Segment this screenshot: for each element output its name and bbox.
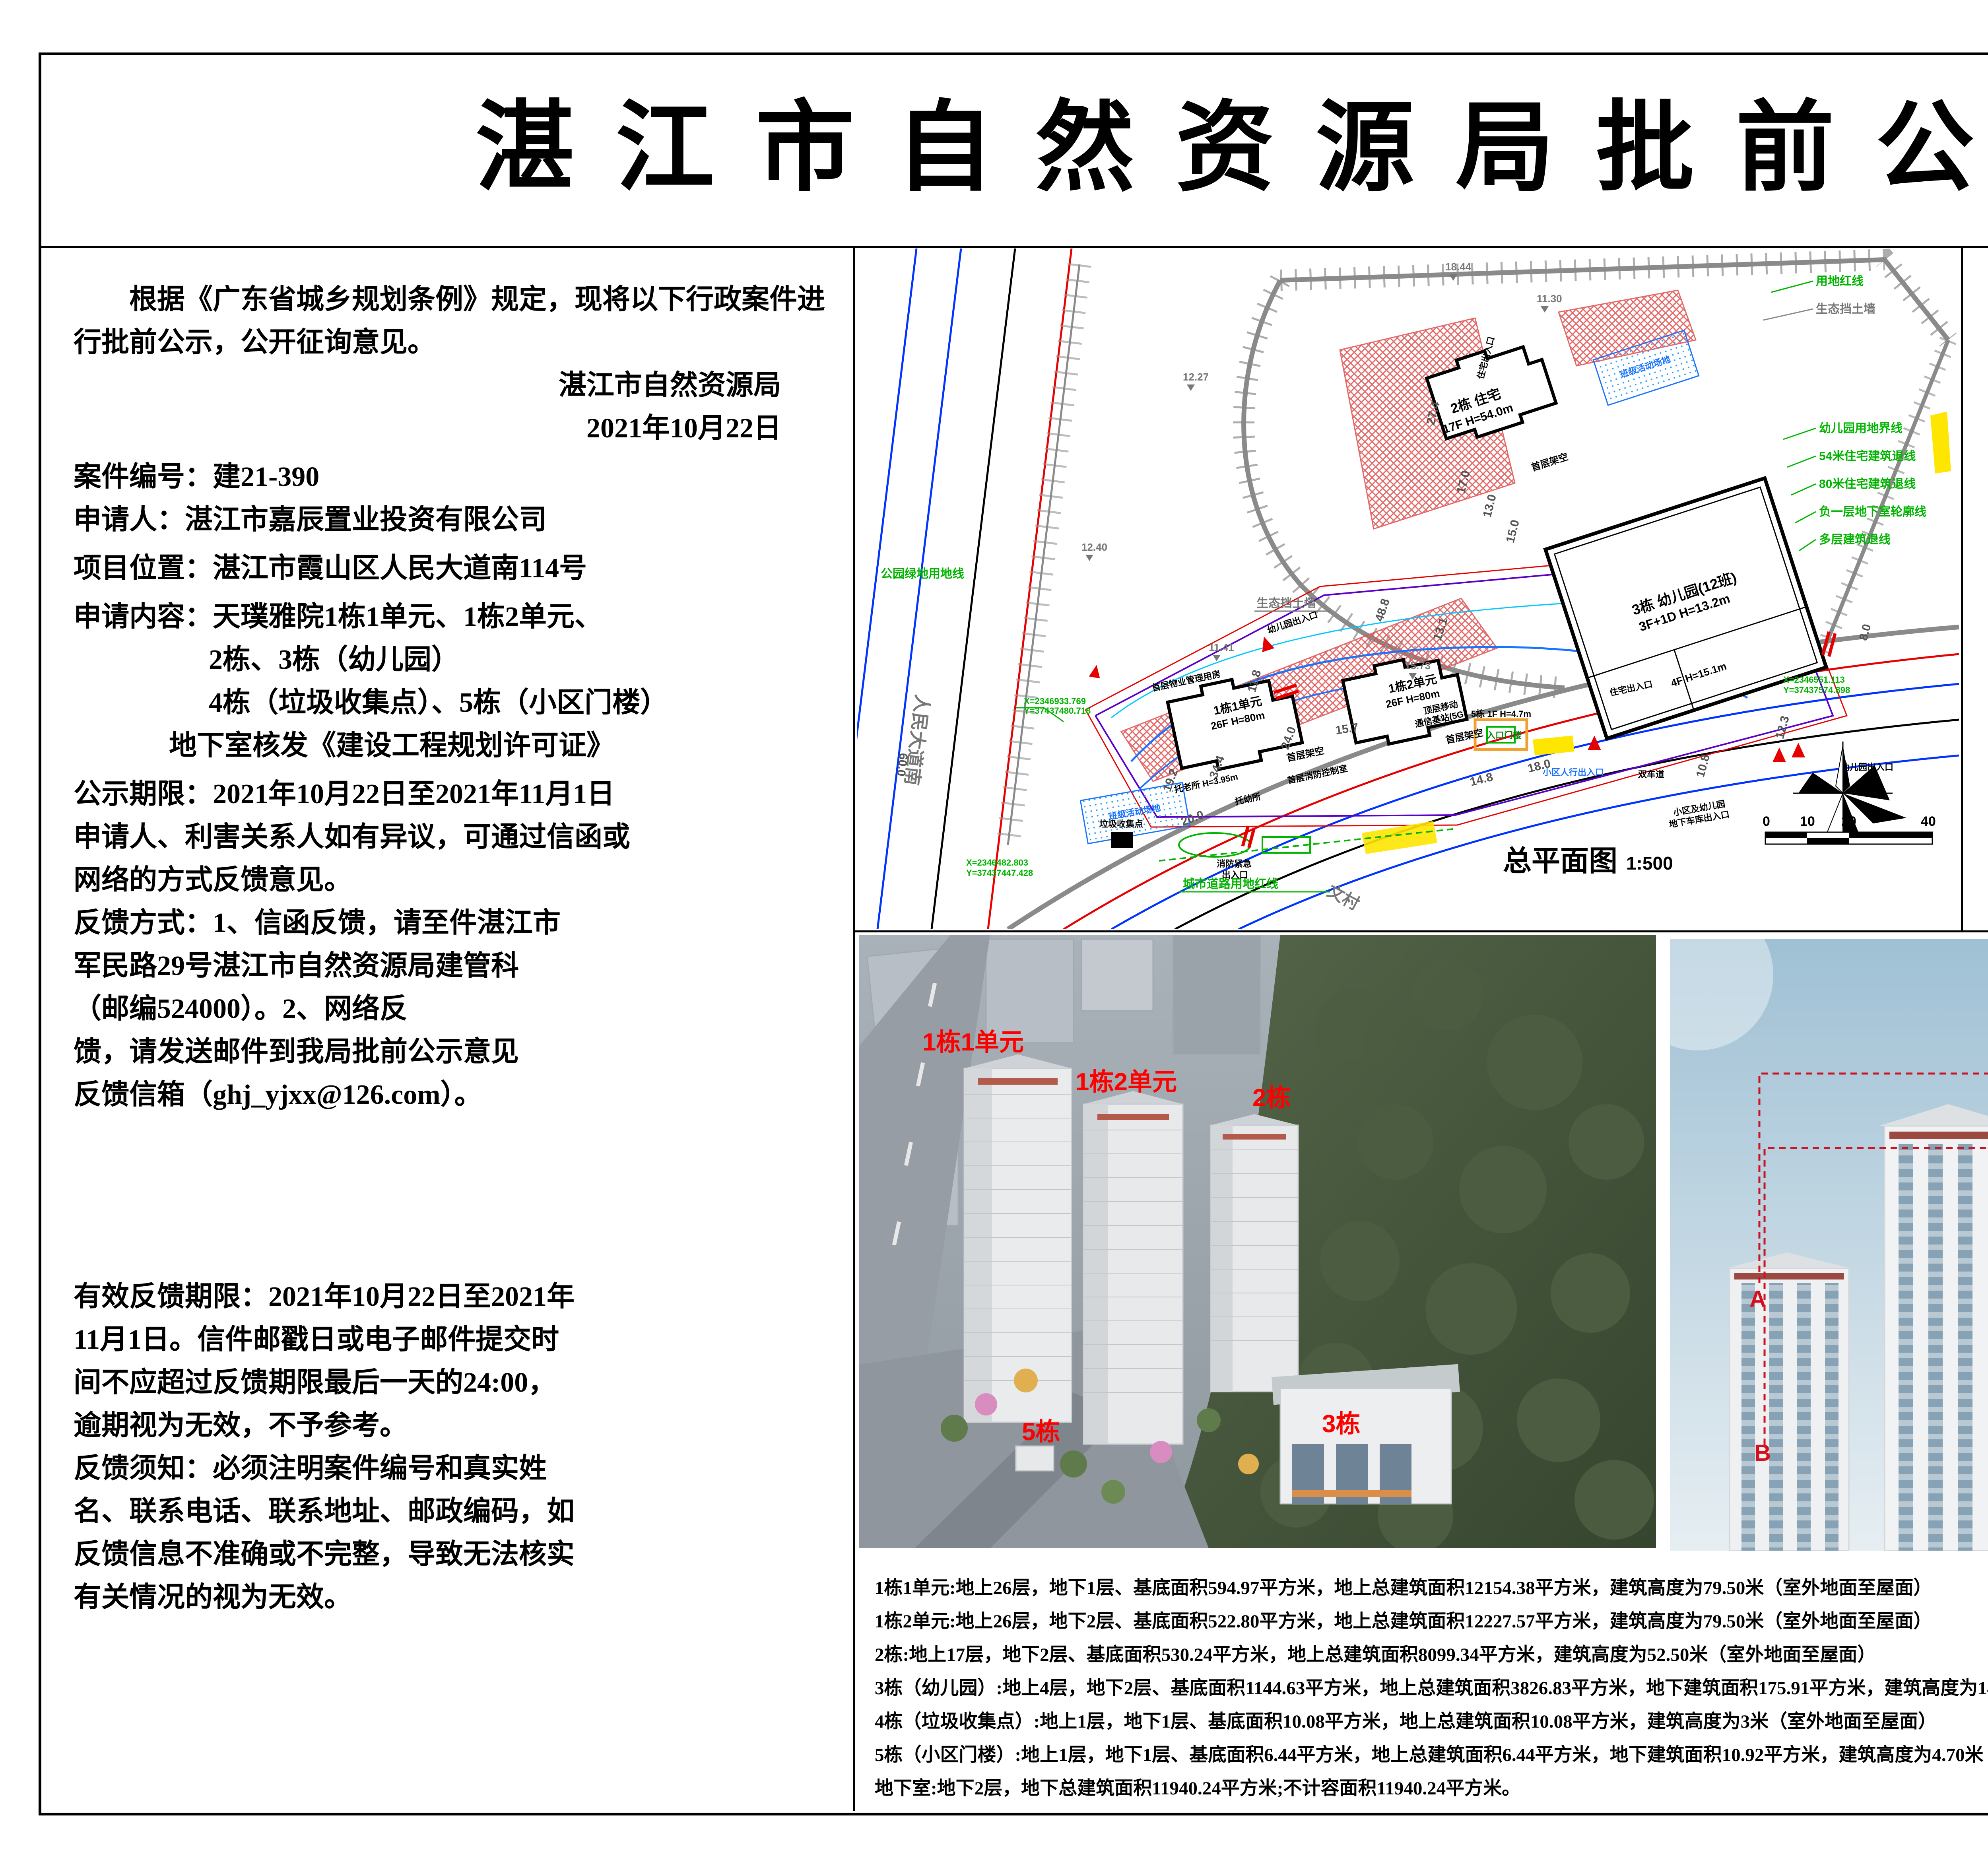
aerial-tower-1 <box>964 1054 1072 1422</box>
application-content-2: 2栋、3栋（幼儿园） <box>74 639 841 681</box>
case-number: 案件编号：建21-390 <box>74 456 841 499</box>
project-location: 项目位置：湛江市霞山区人民大道南114号 <box>74 547 841 590</box>
elev-mark: 12.40 <box>1081 541 1107 553</box>
application-content-1: 申请内容：天璞雅院1栋1单元、1栋2单元、 <box>74 596 841 639</box>
desc-line-3: 2栋:地上17层，地下2层、基底面积530.24平方米，地上总建筑面积8099.… <box>875 1638 1988 1672</box>
desc-line-4: 3栋（幼儿园）:地上4层，地下2层、基底面积1144.63平方米，地上总建筑面积… <box>875 1672 1988 1705</box>
dim: 60.0 <box>894 752 910 777</box>
aerial-building-3 <box>1272 1364 1460 1504</box>
application-content-4: 地下室核发《建设工程规划许可证》 <box>74 724 841 767</box>
applicant: 申请人：湛江市嘉辰置业投资有限公司 <box>74 499 841 542</box>
valid-feedback-period: 有效反馈期限：2021年10月22日至2021年 11月1日。信件邮戳日或电子邮… <box>74 1276 841 1447</box>
label-kid-boundary: 幼儿园用地界线 <box>1819 422 1903 435</box>
label-kid-entry-1: 幼儿园出入口 <box>1841 762 1893 772</box>
elev-tower-B <box>1879 1104 1988 1551</box>
label-trash-point: 垃圾收集点 <box>1099 819 1143 829</box>
coord: X=2346933.769 <box>1024 696 1086 706</box>
aerial-rendering: 1栋1单元 1栋2单元 2栋 3栋 5栋 <box>859 935 1656 1548</box>
label-eco-wall-2: 生态挡土墙 <box>1256 597 1316 610</box>
plan-scale: 1:500 <box>1626 853 1673 874</box>
scale-tick-10: 10 <box>1800 814 1815 829</box>
label-pedestrian-entry: 小区人行出入口 <box>1543 767 1604 777</box>
aerial-label-3: 3栋 <box>1322 1410 1360 1438</box>
intro-paragraph: 根据《广东省城乡规划条例》规定，现将以下行政案件进行批前公示，公开征询意见。 <box>74 278 841 364</box>
application-content-3: 4栋（垃圾收集点）、5栋（小区门楼） <box>74 681 841 724</box>
label-gate-name: 入口门楼 <box>1487 730 1522 740</box>
plan-title: 总平面图 <box>1503 845 1617 877</box>
label-setback-80: 80米住宅建筑退线 <box>1819 477 1916 491</box>
label-setback-54: 54米住宅建筑退线 <box>1819 449 1916 463</box>
elev-mark: 11.30 <box>1537 293 1562 305</box>
publicity-period: 公示期限：2021年10月22日至2021年11月1日 申请人、利害关系人如有异… <box>74 773 841 902</box>
divider-under-title <box>40 246 1988 248</box>
label-basement-line: 负一层地下室轮廓线 <box>1819 505 1926 518</box>
notice-sheet: 湛江市自然资源局批前公示 根据《广东省城乡规划条例》规定，现将以下行政案件进行批… <box>0 0 1988 1860</box>
scale-tick-40: 40 <box>1921 814 1936 829</box>
scale-tick-0: 0 <box>1763 814 1770 829</box>
coord: Y=37437574.898 <box>1783 685 1850 695</box>
elev-mark: 12.27 <box>1183 371 1209 383</box>
mark-B: B <box>1754 1440 1771 1466</box>
building-4-trash-footprint <box>1111 832 1133 848</box>
elevation-rendering: A B C 采用国家建筑外墙色卡标准 CBCC 色卡编号 A 1、白色质感涂料 … <box>1670 939 1988 1551</box>
page-title: 湛江市自然资源局批前公示 <box>41 68 1988 210</box>
left-panel: 根据《广东省城乡规划条例》规定，现将以下行政案件进行批前公示，公开征询意见。 湛… <box>74 278 841 1619</box>
mark-A: A <box>1749 1286 1766 1312</box>
desc-line-1: 1栋1单元:地上26层，地下1层、基底面积594.97平方米，地上总建筑面积12… <box>875 1571 1988 1605</box>
aerial-label-1u2: 1栋2单元 <box>1076 1068 1177 1096</box>
coord: X=2346482.803 <box>966 858 1028 868</box>
label-eco-wall: 生态挡土墙 <box>1816 303 1875 316</box>
elev-mark: 18.44 <box>1445 261 1472 273</box>
aerial-label-2: 2栋 <box>1252 1084 1291 1112</box>
label-fire-entry-1: 消防紧急 <box>1217 859 1252 869</box>
desc-line-7: 地下室:地下2层，地下总建筑面积11940.24平方米;不计容面积11940.2… <box>875 1772 1988 1805</box>
desc-line-5: 4栋（垃圾收集点）:地上1层，地下1层、基底面积10.08平方米，地上总建筑面积… <box>875 1705 1988 1738</box>
elev-mark: 11.41 <box>1209 641 1234 653</box>
aerial-label-1u1: 1栋1单元 <box>922 1029 1024 1056</box>
aerial-tower-2 <box>1083 1091 1183 1444</box>
feedback-notice: 反馈须知：必须注明案件编号和真实姓 名、联系电话、联系地址、邮政编码，如 反馈信… <box>74 1447 841 1619</box>
divider-plan-table <box>1961 246 1963 932</box>
site-plan-drawing: 用地红线 生态挡土墙 幼儿园用地界线 54米住宅建筑退线 80米住宅建筑退线 负… <box>857 249 1959 929</box>
coord: X=2346551.113 <box>1783 675 1845 685</box>
label-fire-entry-2: 出入口 <box>1222 870 1248 880</box>
elev-tower-A <box>1726 1252 1851 1551</box>
desc-line-2: 1栋2单元:地上26层，地下2层、基底面积522.80平方米，地上总建筑面积12… <box>875 1605 1988 1638</box>
building-descriptions: 1栋1单元:地上26层，地下1层、基底面积594.97平方米，地上总建筑面积12… <box>875 1571 1988 1805</box>
aerial-tower-3 <box>1211 1114 1298 1392</box>
notice-date: 2021年10月22日 <box>74 407 841 450</box>
label-park-green-line: 公园绿地用地线 <box>881 567 964 581</box>
feedback-method: 反馈方式：1、信函反馈，请至件湛江市 军民路29号湛江市自然资源局建管科 （邮编… <box>74 902 841 1116</box>
agency-name: 湛江市自然资源局 <box>74 364 841 407</box>
divider-left-panel <box>853 246 855 1811</box>
label-multi-setback: 多层建筑退线 <box>1819 533 1891 546</box>
label-two-lane: 双车道 <box>1638 769 1664 779</box>
scale-tick-20: 20 <box>1841 814 1856 829</box>
aerial-label-5: 5栋 <box>1022 1418 1060 1446</box>
divider-plan-renderings <box>853 930 1988 932</box>
desc-line-6: 5栋（小区门楼）:地上1层，地下1层、基底面积6.44平方米，地上总建筑面积6.… <box>875 1738 1988 1772</box>
label-red-line: 用地红线 <box>1816 275 1864 288</box>
aerial-gate-5 <box>1016 1446 1054 1471</box>
coord: Y=37437447.428 <box>966 868 1033 878</box>
label-gate-5: 5栋 1F H=4.7m <box>1471 709 1531 719</box>
elev-mark: 15.73 <box>1405 660 1431 672</box>
